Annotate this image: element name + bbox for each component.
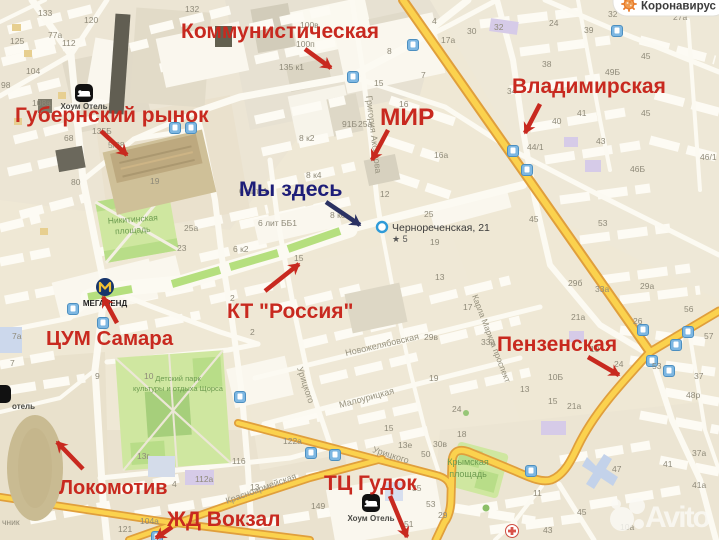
svg-text:Хоум Отель: Хоум Отель — [347, 514, 394, 523]
svg-text:43: 43 — [543, 525, 553, 535]
svg-text:43: 43 — [596, 136, 606, 146]
svg-text:25а: 25а — [358, 119, 372, 129]
svg-text:15: 15 — [548, 396, 558, 406]
svg-text:17а: 17а — [441, 35, 455, 45]
svg-text:8: 8 — [387, 46, 392, 56]
svg-text:отель: отель — [12, 402, 35, 411]
svg-text:53: 53 — [426, 499, 436, 509]
svg-text:29в: 29в — [424, 332, 438, 342]
svg-text:45: 45 — [577, 507, 587, 517]
svg-text:13: 13 — [250, 482, 260, 492]
svg-text:132: 132 — [185, 4, 199, 14]
svg-text:4: 4 — [172, 479, 177, 489]
svg-text:46Б: 46Б — [630, 164, 645, 174]
svg-text:45: 45 — [529, 214, 539, 224]
svg-text:18: 18 — [457, 429, 467, 439]
svg-text:ТЦ Гудок: ТЦ Гудок — [324, 472, 417, 495]
svg-text:40: 40 — [552, 116, 562, 126]
svg-text:37а: 37а — [692, 448, 706, 458]
svg-text:Крымская: Крымская — [447, 457, 489, 467]
svg-text:112: 112 — [62, 38, 76, 48]
svg-text:ЦУМ Самара: ЦУМ Самара — [46, 327, 174, 350]
svg-text:41: 41 — [577, 108, 587, 118]
svg-text:53: 53 — [598, 218, 608, 228]
svg-text:24: 24 — [452, 404, 462, 414]
svg-text:Коммунистическая: Коммунистическая — [181, 20, 379, 43]
svg-text:16а: 16а — [434, 150, 448, 160]
svg-text:13е: 13е — [398, 440, 412, 450]
svg-text:Владимирская: Владимирская — [512, 75, 666, 98]
svg-text:КТ "Россия": КТ "Россия" — [227, 300, 353, 323]
svg-text:38: 38 — [542, 59, 552, 69]
svg-text:32: 32 — [494, 22, 504, 32]
svg-text:10Б: 10Б — [548, 372, 563, 382]
svg-text:50: 50 — [421, 449, 431, 459]
svg-text:23: 23 — [177, 243, 187, 253]
svg-text:Мы здесь: Мы здесь — [239, 177, 342, 201]
svg-text:Пензенская: Пензенская — [497, 333, 617, 356]
svg-text:112а: 112а — [195, 474, 214, 484]
svg-text:13г: 13г — [137, 451, 150, 461]
svg-text:149: 149 — [311, 501, 325, 511]
svg-text:15: 15 — [294, 253, 304, 263]
svg-text:29а: 29а — [640, 281, 654, 291]
svg-text:Чернореченская, 21: Чернореченская, 21 — [392, 222, 490, 234]
svg-text:25: 25 — [424, 209, 434, 219]
svg-text:ЖД Вокзал: ЖД Вокзал — [166, 508, 280, 531]
svg-text:Детский парк: Детский парк — [155, 374, 201, 383]
svg-text:19: 19 — [150, 176, 160, 186]
svg-text:21а: 21а — [567, 401, 581, 411]
svg-text:45: 45 — [641, 51, 651, 61]
svg-text:МИР: МИР — [380, 104, 434, 131]
svg-text:19: 19 — [429, 373, 439, 383]
svg-text:33а: 33а — [595, 284, 609, 294]
svg-text:чник: чник — [2, 517, 20, 527]
svg-text:48р: 48р — [686, 390, 700, 400]
svg-text:6 лит ББ1: 6 лит ББ1 — [258, 218, 297, 228]
svg-text:47: 47 — [612, 464, 622, 474]
svg-text:7: 7 — [421, 70, 426, 80]
svg-text:33а: 33а — [481, 337, 495, 347]
svg-text:7: 7 — [10, 358, 15, 368]
svg-text:46/1: 46/1 — [700, 152, 717, 162]
svg-text:37: 37 — [694, 371, 704, 381]
svg-text:39: 39 — [584, 25, 594, 35]
svg-text:Губернский рынок: Губернский рынок — [15, 104, 209, 127]
svg-text:25а: 25а — [184, 223, 198, 233]
svg-text:53: 53 — [652, 361, 662, 371]
svg-text:45: 45 — [641, 108, 651, 118]
svg-text:26: 26 — [633, 316, 643, 326]
svg-text:122а: 122а — [283, 436, 302, 446]
svg-text:135 к1: 135 к1 — [279, 62, 304, 72]
svg-text:4: 4 — [432, 16, 437, 26]
svg-text:11: 11 — [533, 488, 542, 498]
svg-text:121: 121 — [118, 524, 132, 534]
svg-text:8 к2: 8 к2 — [299, 133, 315, 143]
svg-text:2: 2 — [250, 327, 255, 337]
svg-text:68: 68 — [64, 133, 74, 143]
svg-text:★ 5: ★ 5 — [392, 234, 408, 244]
svg-text:культуры и отдыха Щорса: культуры и отдыха Щорса — [133, 384, 224, 393]
svg-text:56: 56 — [684, 304, 694, 314]
svg-text:133: 133 — [38, 8, 52, 18]
svg-text:13: 13 — [435, 272, 445, 282]
svg-text:104а: 104а — [140, 516, 159, 526]
svg-text:15: 15 — [384, 423, 394, 433]
svg-text:91Б: 91Б — [342, 119, 357, 129]
svg-text:41а: 41а — [692, 480, 706, 490]
svg-text:13: 13 — [520, 384, 530, 394]
svg-text:120: 120 — [84, 15, 98, 25]
svg-text:80: 80 — [71, 177, 81, 187]
svg-text:Локомотив: Локомотив — [59, 477, 168, 499]
svg-text:10: 10 — [144, 371, 154, 381]
svg-text:Коронавирус: Коронавирус — [641, 1, 717, 13]
svg-text:30в: 30в — [433, 439, 447, 449]
svg-text:29б: 29б — [568, 278, 582, 288]
svg-text:15: 15 — [374, 78, 384, 88]
svg-text:19: 19 — [430, 237, 440, 247]
svg-text:12: 12 — [380, 189, 390, 199]
svg-text:44/1: 44/1 — [527, 142, 544, 152]
svg-text:41: 41 — [663, 459, 673, 469]
svg-text:Avito: Avito — [645, 501, 711, 534]
svg-text:6 к2: 6 к2 — [233, 244, 249, 254]
svg-text:24: 24 — [614, 359, 624, 369]
svg-text:24: 24 — [549, 18, 559, 28]
svg-text:116: 116 — [232, 456, 246, 466]
svg-text:30: 30 — [467, 26, 477, 36]
svg-text:21а: 21а — [571, 312, 585, 322]
svg-text:77а: 77а — [48, 30, 62, 40]
svg-text:17: 17 — [463, 302, 473, 312]
svg-text:125: 125 — [10, 36, 24, 46]
svg-text:29: 29 — [438, 510, 448, 520]
svg-text:104: 104 — [26, 66, 40, 76]
svg-text:98: 98 — [1, 80, 11, 90]
svg-text:57: 57 — [704, 331, 714, 341]
svg-text:7а: 7а — [12, 331, 22, 341]
svg-text:9: 9 — [95, 371, 100, 381]
svg-text:площадь: площадь — [449, 469, 487, 479]
